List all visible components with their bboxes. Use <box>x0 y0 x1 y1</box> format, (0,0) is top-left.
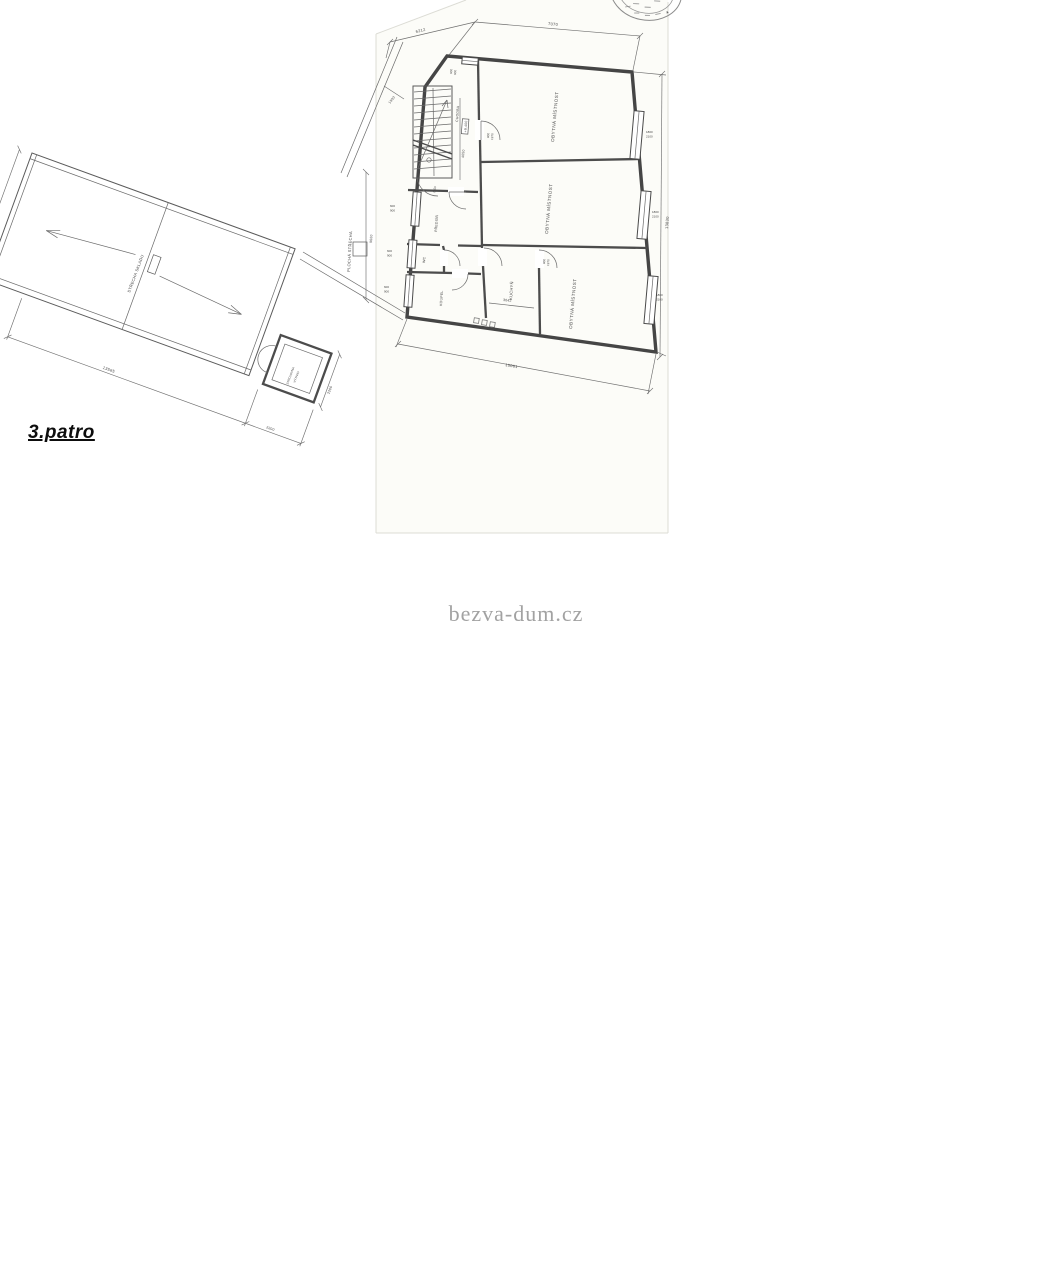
svg-text:13830: 13830 <box>664 216 670 229</box>
svg-text:13565: 13565 <box>102 365 116 374</box>
roof-dim-left: 5800 <box>0 145 23 279</box>
svg-text:1970: 1970 <box>490 133 494 140</box>
svg-text:600: 600 <box>453 69 457 75</box>
svg-text:2100: 2100 <box>652 215 659 219</box>
roof-ridge-line <box>122 203 168 330</box>
svg-text:900: 900 <box>390 209 395 213</box>
stamp-star: * <box>665 11 669 18</box>
svg-text:600: 600 <box>384 285 389 289</box>
svg-text:1800: 1800 <box>646 130 653 134</box>
scanned-floor-plan-sheet: * STŘECHA SKLADU 5800 <box>0 0 1050 1272</box>
svg-text:2100: 2100 <box>656 298 663 302</box>
room-label-wc: WC <box>422 256 426 263</box>
svg-text:1970: 1970 <box>546 259 550 266</box>
roof-plan: STŘECHA SKLADU 5800 STROJOVNA VÝTAHU 220… <box>0 145 374 450</box>
svg-text:600: 600 <box>390 204 395 208</box>
svg-text:+9,400: +9,400 <box>463 120 468 132</box>
roof-hatch-box <box>147 255 161 275</box>
roof-slope-arrow-left <box>45 223 135 265</box>
svg-text:1800: 1800 <box>652 210 659 214</box>
roof-outline <box>0 153 295 376</box>
floor-plan-drawing: * STŘECHA SKLADU 5800 <box>0 0 1050 1272</box>
svg-text:2200: 2200 <box>327 385 334 394</box>
roof-label: STŘECHA SKLADU <box>126 254 144 294</box>
corridor-level-box: +9,400 <box>461 119 469 134</box>
svg-text:4050: 4050 <box>461 149 466 158</box>
svg-text:7070: 7070 <box>548 21 559 27</box>
flat-roof-box <box>353 242 367 256</box>
watermark: bezva-dum.cz <box>436 601 596 627</box>
svg-text:900: 900 <box>387 254 392 258</box>
roof-slope-arrow-right <box>156 276 244 317</box>
svg-text:1800: 1800 <box>656 293 663 297</box>
svg-text:600: 600 <box>387 249 392 253</box>
flat-roof-dim-9600: 9600 <box>363 169 373 303</box>
svg-text:900: 900 <box>384 290 389 294</box>
floor-title: 3.patro <box>28 422 95 444</box>
roof-eave-double-lines <box>0 153 295 376</box>
flat-roof-label: PLOCHÁ STŘECHA <box>346 231 353 272</box>
svg-text:9600: 9600 <box>369 234 373 243</box>
svg-text:2100: 2100 <box>646 135 653 139</box>
scan-paper-edges <box>376 0 668 533</box>
